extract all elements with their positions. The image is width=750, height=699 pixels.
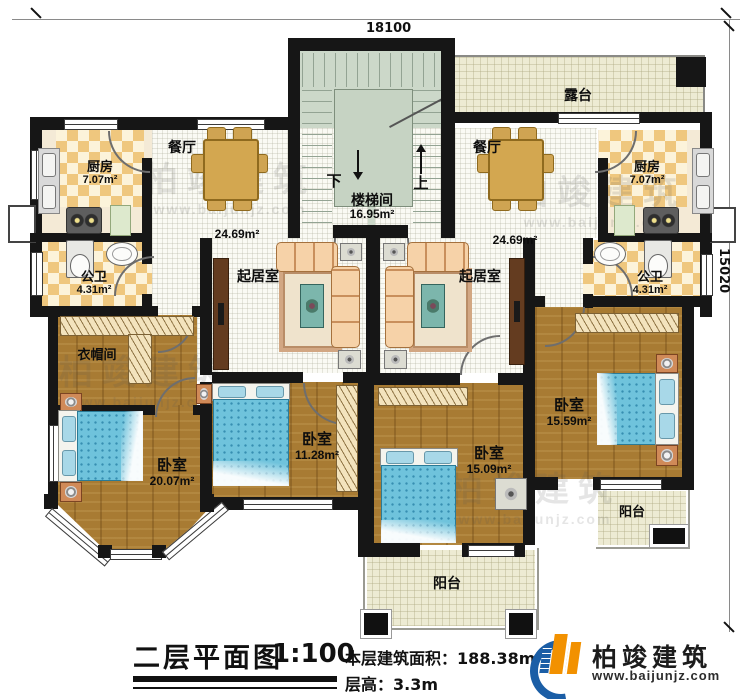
fridge-icon: [110, 205, 131, 236]
terrace-floor: [452, 55, 705, 115]
company-logo-icon: [528, 630, 588, 692]
floor-height-value: 3.3m: [393, 675, 438, 694]
bed-icon: [381, 465, 456, 543]
kitchen-sink-icon: [692, 148, 714, 214]
window: [243, 499, 333, 510]
coffee-table-icon: [421, 284, 445, 328]
stair-treads-left: [302, 87, 332, 223]
wall: [288, 38, 455, 51]
company-url: www.baijunjz.com: [592, 668, 720, 683]
stove-icon: [643, 207, 679, 234]
wall: [366, 230, 380, 375]
bed-icon: [213, 399, 289, 486]
wall: [583, 238, 593, 264]
cabinet-icon: [495, 478, 527, 510]
room-label-dining-right: 餐厅: [473, 140, 501, 155]
wall: [523, 477, 558, 490]
wardrobe-icon: [128, 334, 152, 384]
window: [64, 119, 118, 130]
room-label-living-left: 起居室: [237, 269, 279, 284]
title-underline-thick: [133, 676, 337, 682]
bay-post: [44, 494, 58, 509]
room-label-bedroom-small-left: 卧室11.28m²: [295, 432, 339, 462]
column: [361, 610, 391, 638]
wall: [441, 38, 455, 238]
room-label-balcony-bottom: 阳台: [433, 576, 461, 591]
stair-landing: [334, 89, 413, 207]
room-label-kitchen-right: 厨房7.07m²: [630, 160, 665, 186]
coffee-table-icon: [300, 284, 324, 328]
wall: [535, 296, 545, 307]
dimension-tick: [720, 7, 731, 18]
basin-icon: [106, 242, 138, 266]
sofa-icon: [331, 266, 360, 348]
floor-area-row: 本层建筑面积：188.38m²: [345, 645, 542, 669]
nightstand-icon: [60, 393, 82, 411]
bed-icon: [597, 373, 657, 445]
window: [558, 113, 640, 124]
floor-plan-canvas: 18100 15020 柏竣建筑www.baijunjz.com 柏竣建筑www…: [0, 0, 750, 699]
window: [31, 252, 43, 296]
kitchen-sink-icon: [38, 148, 60, 214]
stair-arrow-up-icon: [416, 144, 426, 152]
floor-height-label: 层高：: [345, 677, 393, 694]
wall: [682, 307, 694, 485]
wall: [200, 238, 212, 375]
stair-arrow-up-stem: [420, 152, 422, 174]
sofa-icon: [276, 242, 338, 272]
window: [468, 545, 515, 557]
area-label-hall-right: 24.69m²: [493, 234, 538, 247]
window: [701, 254, 713, 296]
dimension-right-value: 15020: [716, 248, 731, 293]
floor-height-row: 层高：3.3m: [345, 671, 438, 695]
nightstand-icon: [656, 445, 678, 466]
nightstand-icon: [60, 482, 82, 502]
wall: [583, 296, 712, 307]
wall: [212, 372, 303, 383]
room-label-stairwell: 楼梯间16.95m²: [350, 193, 395, 222]
wall: [498, 373, 525, 385]
dimension-line-top: [12, 19, 740, 20]
side-table-icon: [338, 350, 361, 369]
wall: [368, 373, 460, 385]
column: [650, 525, 688, 547]
nightstand-icon: [656, 354, 678, 373]
stair-treads-top: [302, 53, 441, 87]
side-table-icon: [384, 350, 407, 369]
plan-scale: 1:100: [272, 639, 355, 669]
wall: [358, 375, 374, 557]
headboard-icon: [655, 373, 679, 445]
side-table-icon: [383, 243, 405, 261]
sofa-icon: [385, 266, 414, 348]
stove-icon: [66, 207, 102, 234]
dining-table-icon: [203, 139, 259, 201]
tv-cabinet-icon: [509, 258, 525, 365]
floor-area-label: 本层建筑面积：: [345, 651, 457, 668]
room-label-bath-left: 公卫4.31m²: [77, 270, 112, 296]
wardrobe-icon: [575, 313, 679, 333]
room-label-kitchen-left: 厨房7.07m²: [83, 160, 118, 186]
area-label-hall-left: 24.69m²: [215, 228, 260, 241]
wardrobe-icon: [378, 387, 468, 406]
dimension-line-right: [729, 19, 730, 632]
stair-down-label: 下: [326, 174, 341, 191]
room-label-living-right: 起居室: [459, 269, 501, 284]
stair-up-label: 上: [413, 176, 428, 193]
wardrobe-icon: [336, 385, 358, 492]
basin-icon: [594, 242, 626, 266]
room-label-bedroom-center-right: 卧室15.09m²: [467, 446, 512, 476]
wall: [583, 294, 593, 308]
bay-post: [200, 494, 214, 512]
dimension-tick: [30, 7, 41, 18]
room-label-bedroom-right: 卧室15.59m²: [547, 398, 592, 428]
room-label-dining-left: 餐厅: [168, 140, 196, 155]
wall: [288, 38, 300, 238]
plan-title: 二层平面图: [133, 636, 283, 675]
wall: [142, 294, 152, 308]
side-table-icon: [340, 243, 362, 261]
wall: [358, 543, 420, 557]
tv-cabinet-icon: [213, 258, 229, 370]
room-label-balcony-right: 阳台: [619, 505, 645, 519]
terrace-corner-pier: [676, 57, 706, 87]
wardrobe-icon: [60, 316, 194, 336]
stair-arrow-down-icon: [353, 172, 363, 180]
bed-icon: [77, 411, 143, 481]
room-label-terrace: 露台: [564, 88, 592, 103]
room-label-bath-right: 公卫4.31m²: [633, 270, 668, 296]
stair-arrow-down-stem: [357, 150, 359, 172]
wall: [48, 317, 58, 413]
room-label-cloakroom: 衣帽间: [77, 348, 116, 362]
title-underline-thin: [133, 687, 337, 689]
window: [600, 479, 662, 490]
nightstand-icon: [196, 384, 212, 404]
fridge-icon: [614, 205, 635, 236]
dimension-top-value: 18100: [366, 21, 411, 36]
room-label-bedroom-master-left: 卧室20.07m²: [150, 458, 195, 488]
